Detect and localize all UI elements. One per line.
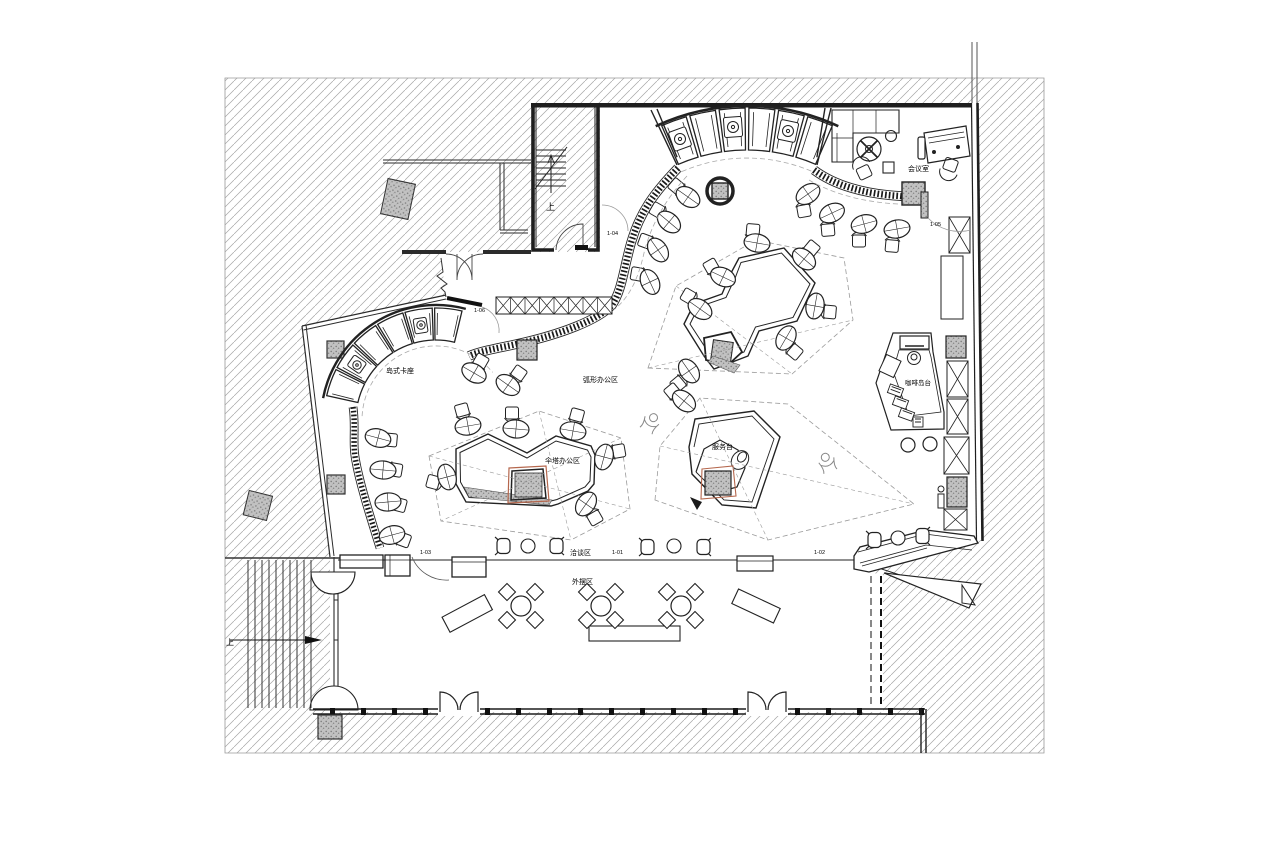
svg-text:服务台: 服务台 xyxy=(712,442,733,451)
svg-text:会议室: 会议室 xyxy=(908,164,929,173)
svg-text:洽谈区: 洽谈区 xyxy=(570,548,591,557)
svg-text:岛式卡座: 岛式卡座 xyxy=(386,366,414,375)
svg-text:上: 上 xyxy=(546,202,555,212)
svg-text:1-01: 1-01 xyxy=(612,550,623,556)
svg-text:1-06: 1-06 xyxy=(474,308,485,314)
svg-text:1-04: 1-04 xyxy=(607,231,618,237)
svg-text:1-02: 1-02 xyxy=(814,550,825,556)
svg-text:1-03: 1-03 xyxy=(420,550,431,556)
svg-text:伞塔办公区: 伞塔办公区 xyxy=(545,456,580,465)
svg-text:咖啡岛台: 咖啡岛台 xyxy=(905,378,931,387)
svg-text:外摆区: 外摆区 xyxy=(572,577,593,586)
svg-text:弧形办公区: 弧形办公区 xyxy=(583,375,618,384)
svg-text:上: 上 xyxy=(226,638,234,647)
svg-text:1-05: 1-05 xyxy=(930,222,941,228)
